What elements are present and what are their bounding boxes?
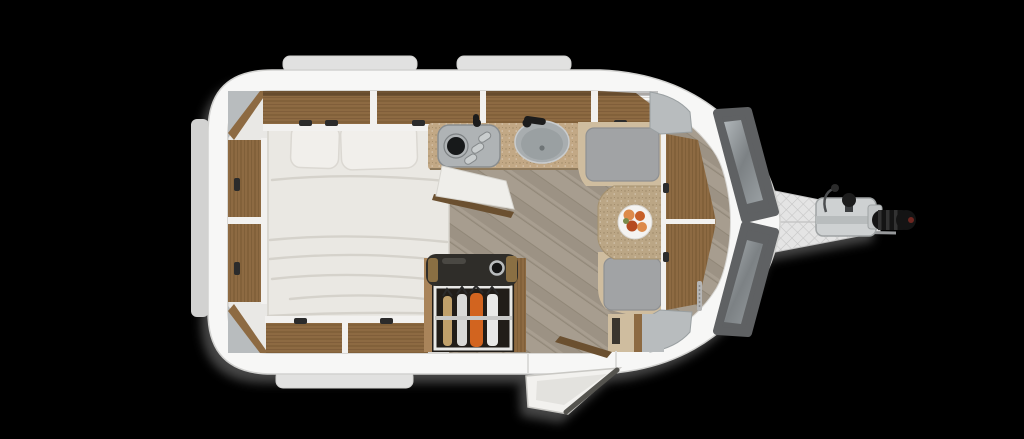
cabinet-handle	[234, 178, 240, 191]
hob-burner	[447, 137, 465, 155]
hitch-coupling-detail	[816, 216, 876, 224]
sink-drain	[539, 145, 544, 150]
side-shelf-trim	[261, 138, 267, 304]
entry-cabinet-slot	[612, 318, 620, 344]
rear-cabinets	[265, 316, 429, 353]
cabinet-handle	[325, 120, 338, 126]
hitch-lever-ball	[831, 184, 839, 192]
cabinet-divider	[342, 322, 348, 353]
window-left	[191, 119, 209, 317]
overhead-cabinet-grain	[263, 91, 658, 125]
wardrobe-gold-left	[428, 258, 438, 282]
entry-cabinet	[608, 314, 634, 352]
garment-1	[443, 296, 452, 346]
clothes-rail	[435, 316, 512, 320]
wardrobe	[424, 254, 526, 352]
sink-bowl	[521, 128, 563, 160]
dinette-seat-rear	[604, 258, 661, 310]
overhead-cabinet-shade	[263, 91, 658, 96]
entry-pillar	[634, 314, 642, 352]
wardrobe-handle-bar	[442, 258, 466, 264]
hitch-knob	[842, 193, 856, 207]
cabinet-handle	[299, 120, 312, 126]
cabinet-divider	[591, 91, 598, 126]
side-shelf-divider	[228, 217, 262, 224]
hitch-grip-tip	[908, 217, 914, 223]
wardrobe-knob	[491, 262, 504, 275]
bench-hinge	[663, 252, 669, 262]
front-bench-divider	[662, 219, 715, 224]
brand-marking	[697, 281, 702, 311]
caravan-floorplan	[0, 0, 1024, 439]
bench-hinge	[663, 183, 669, 193]
cabinet-divider	[480, 91, 486, 126]
cabinet-trim	[265, 316, 429, 323]
hitch-handle-grip	[872, 210, 916, 230]
entry-shelf	[642, 314, 664, 352]
side-shelf-lower-grain	[228, 224, 262, 302]
bed	[268, 121, 449, 318]
dinette-seat-front	[586, 128, 659, 181]
wardrobe-gold-right	[506, 256, 517, 282]
cabinet-handle	[294, 318, 307, 324]
caravan-floorplan-canvas	[0, 0, 1024, 439]
cabinet-handle	[412, 120, 425, 126]
cabinet-divider	[370, 91, 377, 126]
side-shelf-upper-grain	[228, 140, 262, 218]
cabinet-handle	[234, 262, 240, 275]
cabinet-handle	[380, 318, 393, 324]
